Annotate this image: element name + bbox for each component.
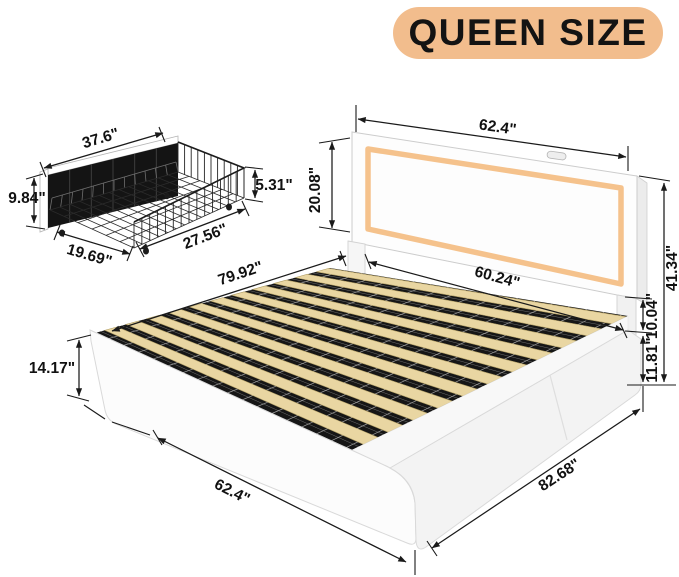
size-badge-label: QUEEN SIZE bbox=[408, 12, 647, 54]
dim-side-rail-height: 11.81" bbox=[644, 337, 661, 382]
dim-drawer-basket-height: 5.31" bbox=[255, 177, 293, 194]
dim-headboard-clearance: 10.04" bbox=[644, 293, 661, 339]
dim-drawer-width: 37.6" bbox=[80, 125, 121, 152]
dim-headboard-panel-height: 20.08" bbox=[307, 167, 324, 213]
bed-dimension-diagram: 37.6" 9.84" 5.31" 27.56" 19.69" 62.4" 20… bbox=[0, 0, 679, 577]
product-dimension-image: 37.6" 9.84" 5.31" 27.56" 19.69" 62.4" 20… bbox=[0, 0, 679, 577]
dim-drawer-front-height: 9.84" bbox=[8, 190, 46, 207]
size-badge: QUEEN SIZE bbox=[393, 7, 663, 59]
dim-overall-width: 62.4" bbox=[211, 476, 252, 508]
dim-total-height: 41.34" bbox=[664, 245, 679, 291]
dim-drawer-depth: 19.69" bbox=[65, 241, 114, 270]
headboard-side-edge bbox=[637, 176, 647, 305]
dim-footboard-height: 14.17" bbox=[29, 360, 75, 377]
dim-headboard-width: 62.4" bbox=[478, 116, 518, 138]
charging-station bbox=[547, 151, 567, 161]
dim-drawer-length: 27.56" bbox=[181, 221, 230, 253]
